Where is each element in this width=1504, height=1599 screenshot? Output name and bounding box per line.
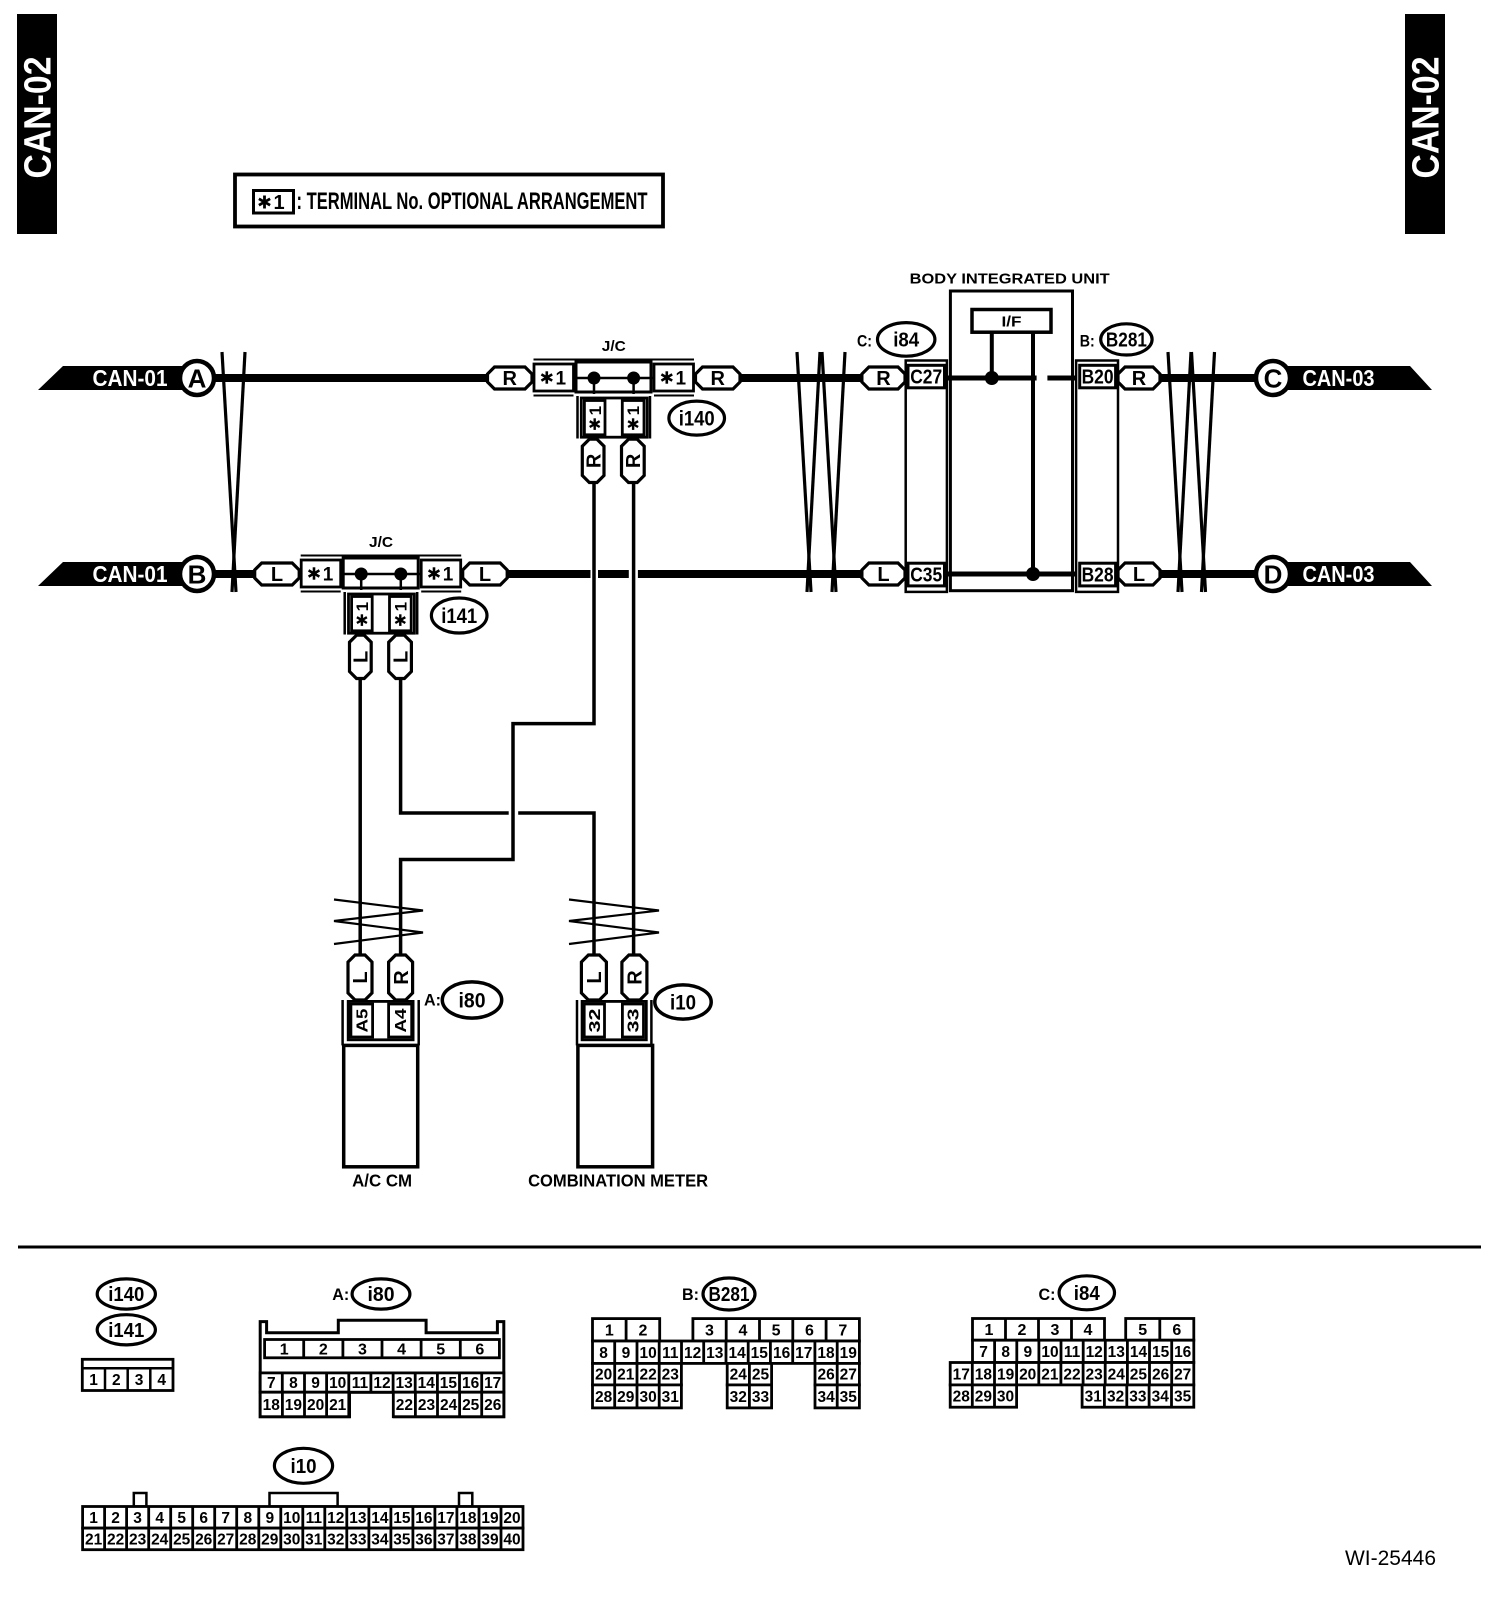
svg-text:28: 28 xyxy=(595,1389,613,1406)
svg-text:9: 9 xyxy=(1023,1344,1032,1361)
svg-text:9: 9 xyxy=(622,1345,631,1362)
svg-text:19: 19 xyxy=(481,1510,499,1527)
svg-text:22: 22 xyxy=(1063,1366,1080,1383)
svg-text:R: R xyxy=(391,970,413,985)
svg-text:B281: B281 xyxy=(1106,330,1147,352)
svg-text:C27: C27 xyxy=(910,367,942,389)
svg-text:WI-25446: WI-25446 xyxy=(1345,1547,1436,1570)
svg-text:R: R xyxy=(876,368,891,390)
svg-text:CAN-03: CAN-03 xyxy=(1303,365,1375,391)
svg-text:10: 10 xyxy=(1041,1344,1058,1361)
svg-text:18: 18 xyxy=(975,1366,993,1383)
svg-text:26: 26 xyxy=(817,1367,835,1384)
svg-text:33: 33 xyxy=(1129,1389,1147,1406)
svg-text:8: 8 xyxy=(599,1345,608,1362)
svg-text:33: 33 xyxy=(752,1389,770,1406)
svg-text:1: 1 xyxy=(273,192,284,214)
svg-text:1: 1 xyxy=(443,564,454,585)
svg-text:B281: B281 xyxy=(709,1284,750,1306)
svg-text:B28: B28 xyxy=(1082,565,1114,587)
svg-text:1: 1 xyxy=(605,1323,614,1340)
svg-text:14: 14 xyxy=(371,1510,389,1527)
svg-text:i10: i10 xyxy=(291,1456,317,1478)
svg-text:9: 9 xyxy=(311,1375,320,1392)
svg-text:J/C: J/C xyxy=(602,338,626,355)
svg-text:1: 1 xyxy=(624,406,643,415)
svg-text:19: 19 xyxy=(997,1366,1015,1383)
svg-text:i84: i84 xyxy=(1074,1283,1101,1305)
svg-text:4: 4 xyxy=(157,1372,166,1389)
svg-text:4: 4 xyxy=(738,1323,747,1340)
svg-text:12: 12 xyxy=(373,1375,390,1392)
svg-text:13: 13 xyxy=(1108,1344,1126,1361)
svg-text:25: 25 xyxy=(462,1397,480,1414)
svg-text:33: 33 xyxy=(626,1008,643,1032)
svg-text:24: 24 xyxy=(1108,1366,1126,1383)
svg-text:35: 35 xyxy=(840,1389,858,1406)
svg-text:28: 28 xyxy=(239,1532,257,1549)
svg-text:25: 25 xyxy=(1130,1366,1148,1383)
svg-text:2: 2 xyxy=(1018,1322,1027,1339)
svg-text:28: 28 xyxy=(953,1389,971,1406)
svg-text:L: L xyxy=(271,564,283,586)
svg-text:A5: A5 xyxy=(355,1008,372,1032)
svg-text:CAN-03: CAN-03 xyxy=(1303,561,1375,587)
svg-text:R: R xyxy=(711,368,726,390)
svg-text:i141: i141 xyxy=(108,1320,144,1342)
svg-text:R: R xyxy=(1132,368,1147,390)
svg-text:A:: A: xyxy=(332,1285,349,1304)
svg-text:39: 39 xyxy=(481,1532,499,1549)
svg-text:20: 20 xyxy=(595,1367,612,1384)
svg-text:15: 15 xyxy=(751,1345,769,1362)
svg-text:17: 17 xyxy=(953,1366,970,1383)
svg-text:23: 23 xyxy=(418,1397,436,1414)
svg-text:1: 1 xyxy=(323,564,334,585)
svg-text:12: 12 xyxy=(684,1345,701,1362)
svg-text:34: 34 xyxy=(817,1389,835,1406)
svg-text:16: 16 xyxy=(462,1375,480,1392)
svg-text:6: 6 xyxy=(475,1341,484,1358)
svg-text:37: 37 xyxy=(437,1532,454,1549)
svg-text:23: 23 xyxy=(129,1532,147,1549)
svg-text:11: 11 xyxy=(306,1510,323,1527)
svg-text:R: R xyxy=(625,970,647,985)
svg-text:20: 20 xyxy=(503,1510,520,1527)
svg-text:J/C: J/C xyxy=(369,534,393,551)
svg-text:12: 12 xyxy=(327,1510,344,1527)
svg-text:3: 3 xyxy=(1051,1322,1060,1339)
svg-text:i141: i141 xyxy=(441,605,477,628)
svg-text:1: 1 xyxy=(353,602,372,611)
svg-text:A: A xyxy=(188,364,207,394)
svg-text:21: 21 xyxy=(617,1367,635,1384)
svg-text:CAN-01: CAN-01 xyxy=(93,561,168,587)
svg-text:C35: C35 xyxy=(910,565,942,587)
svg-text:1: 1 xyxy=(586,406,605,415)
svg-text:16: 16 xyxy=(415,1510,433,1527)
svg-text:5: 5 xyxy=(177,1510,186,1527)
svg-text:8: 8 xyxy=(1001,1344,1010,1361)
svg-text:7: 7 xyxy=(838,1323,847,1340)
svg-text:B:: B: xyxy=(1080,332,1095,351)
svg-text:27: 27 xyxy=(217,1532,234,1549)
svg-text:10: 10 xyxy=(639,1345,656,1362)
svg-text:29: 29 xyxy=(617,1389,635,1406)
svg-text:18: 18 xyxy=(817,1345,835,1362)
svg-text:38: 38 xyxy=(459,1532,477,1549)
svg-text:27: 27 xyxy=(1174,1366,1191,1383)
svg-text:1: 1 xyxy=(676,368,687,389)
svg-text:5: 5 xyxy=(436,1341,445,1358)
svg-text:3: 3 xyxy=(135,1372,144,1389)
svg-text:14: 14 xyxy=(1130,1344,1148,1361)
svg-text:31: 31 xyxy=(1085,1389,1103,1406)
svg-text:B20: B20 xyxy=(1082,367,1114,389)
svg-text:C: C xyxy=(1264,364,1283,394)
svg-text:C:: C: xyxy=(857,332,872,351)
svg-text:BODY INTEGRATED UNIT: BODY INTEGRATED UNIT xyxy=(910,271,1110,288)
svg-text:24: 24 xyxy=(440,1397,458,1414)
svg-text:31: 31 xyxy=(662,1389,680,1406)
svg-text:35: 35 xyxy=(1174,1389,1192,1406)
svg-text:11: 11 xyxy=(1064,1344,1081,1361)
svg-text:20: 20 xyxy=(307,1397,324,1414)
svg-text:B: B xyxy=(188,560,207,590)
svg-text:L: L xyxy=(1133,564,1145,586)
svg-text:14: 14 xyxy=(728,1345,746,1362)
svg-text:1: 1 xyxy=(89,1372,98,1389)
svg-text:2: 2 xyxy=(112,1372,121,1389)
svg-text:21: 21 xyxy=(85,1532,103,1549)
svg-text:1: 1 xyxy=(89,1510,98,1527)
svg-text:18: 18 xyxy=(263,1397,281,1414)
svg-text:22: 22 xyxy=(396,1397,413,1414)
svg-text:L: L xyxy=(350,971,372,983)
svg-text:i140: i140 xyxy=(679,408,715,431)
svg-text:5: 5 xyxy=(1138,1322,1147,1339)
svg-text:32: 32 xyxy=(1107,1389,1124,1406)
svg-text:29: 29 xyxy=(975,1389,993,1406)
svg-text:R: R xyxy=(583,453,605,468)
svg-text:24: 24 xyxy=(151,1532,169,1549)
svg-text:8: 8 xyxy=(243,1510,252,1527)
svg-text:D: D xyxy=(1264,560,1283,590)
svg-text:L: L xyxy=(877,564,889,586)
svg-text:1: 1 xyxy=(985,1322,994,1339)
svg-text:B:: B: xyxy=(682,1285,699,1304)
svg-text:22: 22 xyxy=(107,1532,124,1549)
svg-text:20: 20 xyxy=(1019,1366,1036,1383)
svg-text:19: 19 xyxy=(840,1345,858,1362)
svg-text:3: 3 xyxy=(705,1323,714,1340)
svg-text:5: 5 xyxy=(772,1323,781,1340)
svg-text:13: 13 xyxy=(706,1345,724,1362)
svg-text:6: 6 xyxy=(1172,1322,1181,1339)
svg-text:A:: A: xyxy=(424,991,441,1010)
svg-text:7: 7 xyxy=(979,1344,988,1361)
svg-text:A/C CM: A/C CM xyxy=(352,1170,412,1190)
svg-text:40: 40 xyxy=(503,1532,520,1549)
svg-text:7: 7 xyxy=(267,1375,276,1392)
svg-text:CAN-02: CAN-02 xyxy=(1406,57,1448,179)
svg-text:10: 10 xyxy=(329,1375,346,1392)
svg-text:34: 34 xyxy=(1152,1389,1170,1406)
svg-text:2: 2 xyxy=(319,1341,328,1358)
svg-text:2: 2 xyxy=(638,1323,647,1340)
svg-text:15: 15 xyxy=(440,1375,458,1392)
svg-text:A4: A4 xyxy=(393,1008,410,1032)
svg-text:i140: i140 xyxy=(108,1284,144,1306)
svg-text:3: 3 xyxy=(133,1510,142,1527)
svg-text:R: R xyxy=(623,453,645,468)
svg-text:14: 14 xyxy=(418,1375,436,1392)
svg-text:4: 4 xyxy=(397,1341,406,1358)
svg-text:11: 11 xyxy=(352,1375,369,1392)
svg-text:16: 16 xyxy=(1174,1344,1192,1361)
svg-text:25: 25 xyxy=(173,1532,191,1549)
svg-text:36: 36 xyxy=(415,1532,433,1549)
svg-text:31: 31 xyxy=(305,1532,323,1549)
svg-text:30: 30 xyxy=(283,1532,300,1549)
svg-text:L: L xyxy=(479,564,491,586)
svg-text:26: 26 xyxy=(195,1532,213,1549)
svg-text:7: 7 xyxy=(221,1510,230,1527)
svg-text:29: 29 xyxy=(261,1532,279,1549)
svg-text:6: 6 xyxy=(805,1323,814,1340)
svg-text:21: 21 xyxy=(329,1397,347,1414)
svg-text:30: 30 xyxy=(639,1389,656,1406)
svg-text:L: L xyxy=(584,971,606,983)
svg-text:6: 6 xyxy=(199,1510,208,1527)
svg-text:R: R xyxy=(503,368,518,390)
svg-text:19: 19 xyxy=(285,1397,303,1414)
svg-text:21: 21 xyxy=(1041,1366,1059,1383)
svg-text:24: 24 xyxy=(730,1367,748,1384)
svg-text:23: 23 xyxy=(662,1367,680,1384)
svg-text:17: 17 xyxy=(437,1510,454,1527)
svg-text:17: 17 xyxy=(795,1345,812,1362)
svg-text:i80: i80 xyxy=(368,1284,395,1306)
svg-text:1: 1 xyxy=(280,1341,289,1358)
svg-text:4: 4 xyxy=(1084,1322,1093,1339)
svg-text:1: 1 xyxy=(391,602,410,611)
svg-text:CAN-01: CAN-01 xyxy=(93,365,168,391)
svg-text:CAN-02: CAN-02 xyxy=(18,57,60,179)
svg-text:COMBINATION METER: COMBINATION METER xyxy=(528,1170,708,1190)
svg-text:C:: C: xyxy=(1039,1285,1056,1304)
svg-text:11: 11 xyxy=(662,1345,679,1362)
svg-text:3: 3 xyxy=(358,1341,367,1358)
svg-text:9: 9 xyxy=(265,1510,274,1527)
svg-text:17: 17 xyxy=(484,1375,501,1392)
svg-text:22: 22 xyxy=(639,1367,656,1384)
svg-text:18: 18 xyxy=(459,1510,477,1527)
svg-text:: TERMINAL No. OPTIONAL ARRANG: : TERMINAL No. OPTIONAL ARRANGEMENT xyxy=(297,188,648,215)
svg-text:13: 13 xyxy=(395,1375,413,1392)
svg-text:i84: i84 xyxy=(893,330,920,352)
svg-text:16: 16 xyxy=(773,1345,791,1362)
svg-text:8: 8 xyxy=(289,1375,298,1392)
svg-text:2: 2 xyxy=(111,1510,120,1527)
svg-text:32: 32 xyxy=(730,1389,747,1406)
svg-text:i10: i10 xyxy=(670,992,696,1015)
svg-text:13: 13 xyxy=(349,1510,367,1527)
svg-text:1: 1 xyxy=(556,368,567,389)
svg-text:32: 32 xyxy=(587,1008,604,1032)
svg-text:34: 34 xyxy=(371,1532,389,1549)
svg-text:15: 15 xyxy=(393,1510,411,1527)
svg-text:27: 27 xyxy=(840,1367,857,1384)
svg-text:L: L xyxy=(390,651,412,663)
svg-text:i80: i80 xyxy=(459,990,486,1013)
svg-text:32: 32 xyxy=(327,1532,344,1549)
svg-text:25: 25 xyxy=(752,1367,770,1384)
svg-text:30: 30 xyxy=(997,1389,1014,1406)
svg-text:10: 10 xyxy=(283,1510,300,1527)
svg-text:35: 35 xyxy=(393,1532,411,1549)
svg-text:I/F: I/F xyxy=(1002,314,1022,331)
svg-text:26: 26 xyxy=(1152,1366,1170,1383)
svg-text:4: 4 xyxy=(155,1510,164,1527)
svg-text:12: 12 xyxy=(1086,1344,1103,1361)
svg-text:L: L xyxy=(351,651,373,663)
svg-text:33: 33 xyxy=(349,1532,367,1549)
svg-text:26: 26 xyxy=(484,1397,502,1414)
svg-text:23: 23 xyxy=(1085,1366,1103,1383)
svg-text:15: 15 xyxy=(1152,1344,1170,1361)
